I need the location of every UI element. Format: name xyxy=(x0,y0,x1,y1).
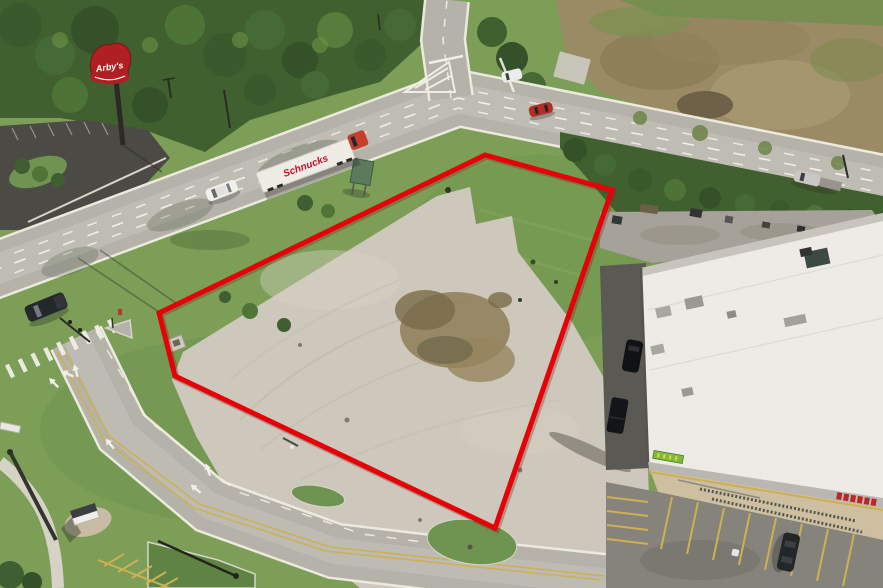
manhole xyxy=(298,343,302,347)
signal-head xyxy=(68,320,72,324)
manhole xyxy=(418,518,422,522)
bush xyxy=(14,158,30,174)
debris-white xyxy=(290,445,294,449)
small-sign xyxy=(118,309,122,315)
bush xyxy=(32,166,48,182)
signal-head xyxy=(78,328,82,332)
bush xyxy=(51,173,65,187)
dumpster xyxy=(724,215,733,223)
aerial-photo: Schnucks xyxy=(0,0,883,588)
tree-shadow xyxy=(170,230,250,250)
dumpster xyxy=(611,215,622,225)
handicap-marking xyxy=(731,548,739,556)
manhole xyxy=(345,418,350,423)
